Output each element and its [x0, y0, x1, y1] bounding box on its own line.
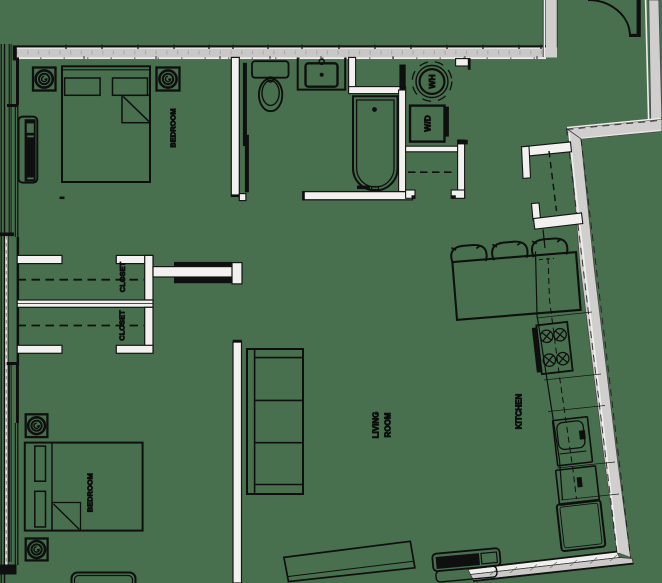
svg-text:BEDROOM: BEDROOM [169, 108, 178, 147]
svg-text:WH: WH [427, 74, 437, 88]
svg-text:W/D: W/D [423, 115, 433, 132]
svg-text:CLOSET: CLOSET [118, 261, 127, 292]
svg-text:ROOM: ROOM [384, 412, 393, 437]
svg-text:KITCHEN: KITCHEN [515, 394, 524, 430]
svg-text:CLOSET: CLOSET [118, 310, 127, 341]
svg-text:BEDROOM: BEDROOM [86, 473, 95, 512]
svg-text:LIVING: LIVING [371, 412, 380, 439]
